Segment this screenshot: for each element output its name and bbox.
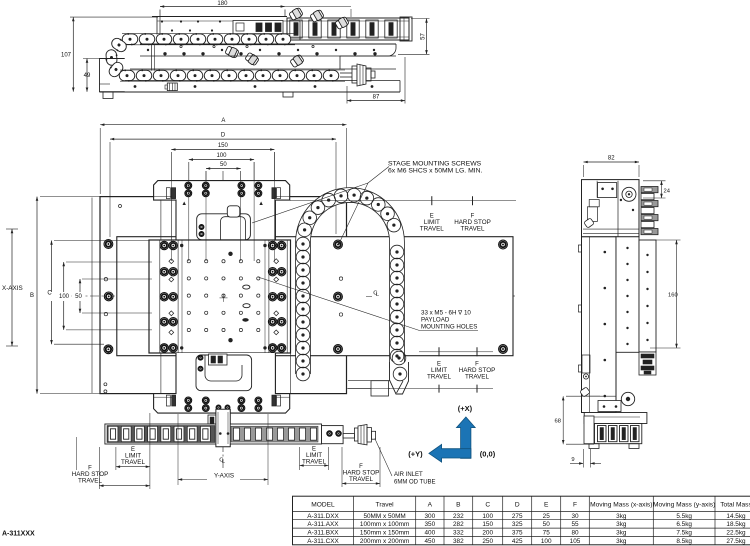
svg-text:STAGE MOUNTING SCREWS: STAGE MOUNTING SCREWS bbox=[388, 161, 482, 168]
svg-text:325: 325 bbox=[512, 521, 523, 528]
svg-text:150mm x 150mm: 150mm x 150mm bbox=[360, 530, 409, 537]
svg-text:24: 24 bbox=[664, 189, 671, 195]
svg-text:232: 232 bbox=[453, 513, 464, 520]
svg-text:27.5kg: 27.5kg bbox=[726, 538, 746, 545]
svg-text:50: 50 bbox=[75, 294, 82, 300]
svg-text:A: A bbox=[221, 118, 225, 124]
svg-text:A-311XXX: A-311XXX bbox=[2, 531, 35, 538]
svg-text:B: B bbox=[30, 293, 34, 299]
svg-text:TRAVEL: TRAVEL bbox=[78, 478, 103, 485]
svg-text:25: 25 bbox=[543, 513, 551, 520]
svg-text:Moving Mass (x-axis): Moving Mass (x-axis) bbox=[590, 501, 652, 508]
svg-text:A-311.DXX: A-311.DXX bbox=[307, 513, 339, 520]
svg-text:F: F bbox=[573, 501, 577, 508]
svg-text:D: D bbox=[221, 132, 226, 138]
svg-text:160: 160 bbox=[668, 293, 678, 299]
svg-text:425: 425 bbox=[512, 538, 523, 545]
svg-text:3kg: 3kg bbox=[616, 521, 627, 528]
svg-text:33 x M5 - 6H ∇ 10: 33 x M5 - 6H ∇ 10 bbox=[421, 310, 471, 317]
svg-text:80: 80 bbox=[571, 530, 579, 537]
svg-text:6MM OD TUBE: 6MM OD TUBE bbox=[394, 480, 436, 486]
svg-text:49: 49 bbox=[84, 73, 91, 79]
svg-text:100mm x 100mm: 100mm x 100mm bbox=[360, 521, 409, 528]
svg-text:(+X): (+X) bbox=[458, 404, 473, 413]
svg-text:3kg: 3kg bbox=[616, 513, 627, 520]
svg-text:100: 100 bbox=[59, 294, 70, 300]
svg-text:450: 450 bbox=[425, 538, 436, 545]
svg-text:D: D bbox=[515, 501, 520, 508]
svg-text:C: C bbox=[47, 290, 52, 296]
svg-text:282: 282 bbox=[453, 521, 464, 528]
svg-text:TRAVEL: TRAVEL bbox=[460, 226, 485, 233]
svg-text:105: 105 bbox=[570, 538, 581, 545]
svg-text:(+Y): (+Y) bbox=[408, 450, 423, 459]
svg-text:Travel: Travel bbox=[376, 501, 395, 508]
svg-text:A-311.BXX: A-311.BXX bbox=[307, 530, 339, 537]
svg-text:150: 150 bbox=[482, 521, 493, 528]
svg-text:200mm x 200mm: 200mm x 200mm bbox=[360, 538, 409, 545]
svg-text:75: 75 bbox=[543, 530, 551, 537]
svg-text:A-311.AXX: A-311.AXX bbox=[307, 521, 339, 528]
svg-text:55: 55 bbox=[571, 521, 579, 528]
svg-text:100: 100 bbox=[541, 538, 552, 545]
svg-text:18.5kg: 18.5kg bbox=[726, 521, 746, 528]
svg-text:275: 275 bbox=[512, 513, 523, 520]
svg-text:400: 400 bbox=[425, 530, 436, 537]
svg-text:87: 87 bbox=[373, 95, 380, 101]
svg-text:14.5kg: 14.5kg bbox=[726, 513, 746, 520]
svg-text:180: 180 bbox=[217, 1, 228, 7]
svg-text:Y-AXIS: Y-AXIS bbox=[214, 473, 234, 480]
svg-text:50MM x 50MM: 50MM x 50MM bbox=[363, 513, 405, 520]
svg-text:107: 107 bbox=[61, 52, 72, 58]
svg-text:300: 300 bbox=[425, 513, 436, 520]
svg-text:22.5kg: 22.5kg bbox=[726, 530, 746, 537]
svg-text:100: 100 bbox=[482, 513, 493, 520]
svg-text:X-AXIS: X-AXIS bbox=[2, 285, 23, 292]
svg-text:375: 375 bbox=[512, 530, 523, 537]
svg-text:200: 200 bbox=[482, 530, 493, 537]
svg-text:332: 332 bbox=[453, 530, 464, 537]
svg-text:TRAVEL: TRAVEL bbox=[465, 374, 490, 381]
svg-text:Total Mass: Total Mass bbox=[720, 501, 750, 508]
svg-text:30: 30 bbox=[571, 513, 579, 520]
svg-text:AIR INLET: AIR INLET bbox=[394, 472, 423, 478]
svg-text:A-311.CXX: A-311.CXX bbox=[307, 538, 339, 545]
svg-text:50: 50 bbox=[220, 162, 227, 168]
svg-text:C: C bbox=[485, 501, 490, 508]
svg-text:TRAVEL: TRAVEL bbox=[121, 459, 146, 466]
svg-text:PAYLOAD: PAYLOAD bbox=[421, 317, 450, 324]
svg-text:3kg: 3kg bbox=[616, 538, 627, 545]
svg-text:MOUNTING HOLES: MOUNTING HOLES bbox=[421, 324, 477, 331]
svg-text:5.5kg: 5.5kg bbox=[676, 513, 692, 520]
svg-text:E: E bbox=[544, 501, 549, 508]
svg-text:TRAVEL: TRAVEL bbox=[420, 226, 445, 233]
svg-text:B: B bbox=[456, 501, 461, 508]
svg-text:350: 350 bbox=[425, 521, 436, 528]
svg-text:6x M6 SHCS x 50MM LG. MIN.: 6x M6 SHCS x 50MM LG. MIN. bbox=[388, 168, 483, 175]
svg-text:382: 382 bbox=[453, 538, 464, 545]
svg-text:68: 68 bbox=[555, 418, 561, 424]
svg-text:250: 250 bbox=[482, 538, 493, 545]
svg-text:3kg: 3kg bbox=[616, 530, 627, 537]
svg-text:TRAVEL: TRAVEL bbox=[302, 459, 327, 466]
svg-text:TRAVEL: TRAVEL bbox=[427, 374, 452, 381]
svg-text:82: 82 bbox=[608, 155, 615, 161]
svg-text:6.5kg: 6.5kg bbox=[676, 521, 692, 528]
svg-text:57: 57 bbox=[421, 33, 427, 40]
svg-text:100: 100 bbox=[216, 153, 227, 159]
svg-text:(0,0): (0,0) bbox=[480, 450, 496, 459]
svg-text:7.5kg: 7.5kg bbox=[676, 530, 692, 537]
svg-text:9: 9 bbox=[571, 457, 574, 463]
svg-text:Moving Mass (y-axis): Moving Mass (y-axis) bbox=[653, 501, 715, 508]
svg-text:TRAVEL: TRAVEL bbox=[349, 476, 374, 483]
svg-text:MODEL: MODEL bbox=[311, 501, 335, 508]
svg-text:A: A bbox=[428, 501, 433, 508]
svg-text:8.5kg: 8.5kg bbox=[676, 538, 692, 545]
svg-text:50: 50 bbox=[543, 521, 551, 528]
svg-text:150: 150 bbox=[218, 143, 229, 149]
